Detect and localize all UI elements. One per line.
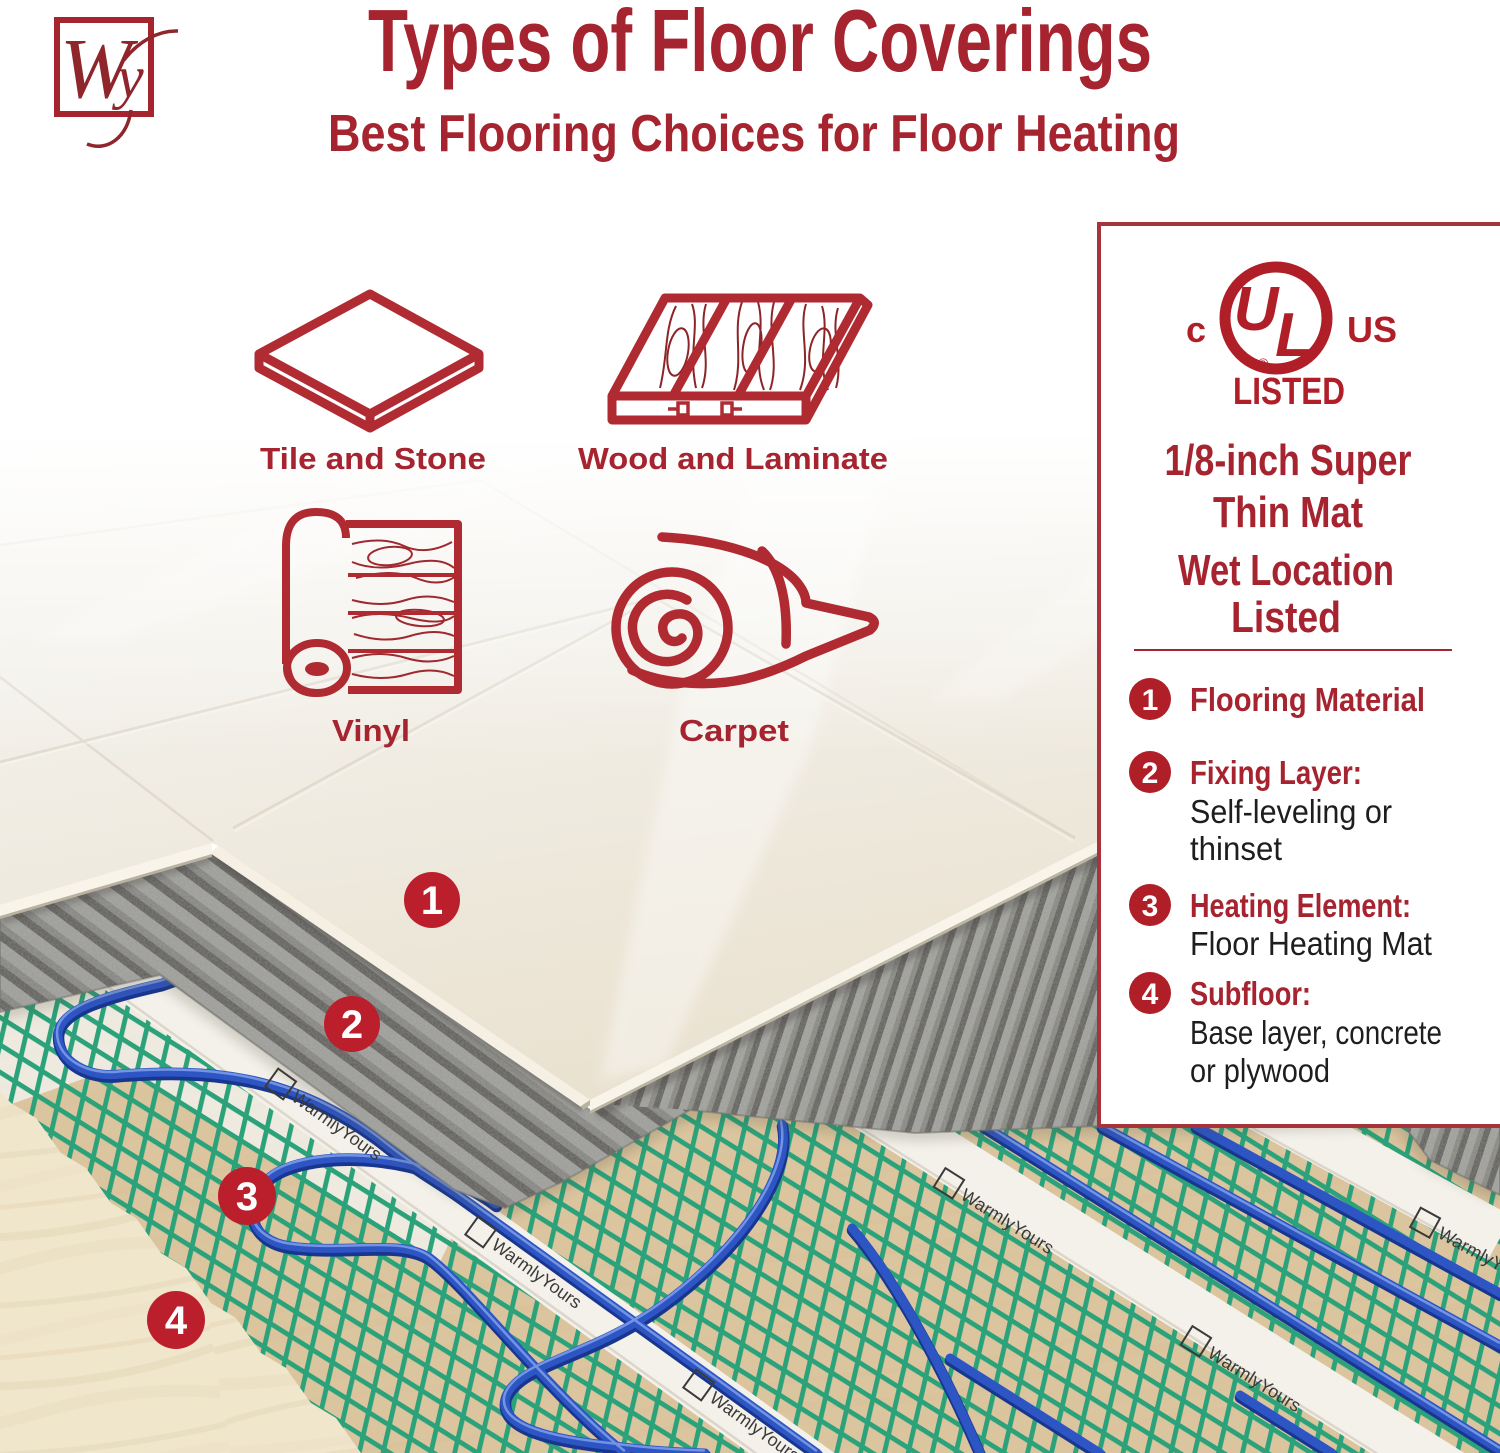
svg-text:1: 1 (421, 879, 443, 923)
svg-text:1/8-inch Super: 1/8-inch Super (1165, 436, 1412, 485)
svg-text:Wood and Laminate: Wood and Laminate (578, 441, 888, 476)
svg-text:Best Flooring Choices for Floo: Best Flooring Choices for Floor Heating (328, 105, 1180, 163)
svg-text:Self-leveling or: Self-leveling or (1190, 793, 1392, 830)
svg-text:4: 4 (165, 1299, 188, 1343)
svg-text:Floor Heating Mat: Floor Heating Mat (1190, 925, 1432, 962)
svg-text:thinset: thinset (1190, 830, 1282, 867)
svg-text:1: 1 (1142, 684, 1159, 717)
svg-text:3: 3 (1142, 890, 1159, 923)
svg-text:US: US (1347, 309, 1397, 350)
svg-text:Thin Mat: Thin Mat (1213, 488, 1363, 537)
svg-text:2: 2 (1142, 757, 1159, 790)
svg-text:Carpet: Carpet (679, 713, 789, 748)
svg-text:Types of Floor Coverings: Types of Floor Coverings (368, 0, 1152, 90)
svg-text:Tile and Stone: Tile and Stone (260, 441, 486, 476)
svg-text:or plywood: or plywood (1190, 1052, 1330, 1089)
svg-text:Wet Location: Wet Location (1178, 546, 1394, 595)
svg-text:LISTED: LISTED (1233, 371, 1345, 413)
svg-text:c: c (1186, 309, 1206, 350)
svg-text:®: ® (1258, 355, 1269, 371)
svg-text:3: 3 (236, 1175, 258, 1219)
svg-text:2: 2 (341, 1003, 363, 1047)
svg-text:Base layer, concrete: Base layer, concrete (1190, 1014, 1442, 1051)
svg-text:Vinyl: Vinyl (332, 713, 410, 748)
svg-text:L: L (1275, 301, 1313, 370)
svg-text:Listed: Listed (1231, 593, 1341, 642)
svg-text:U: U (1234, 275, 1281, 344)
svg-text:Fixing Layer:: Fixing Layer: (1190, 754, 1362, 791)
svg-text:4: 4 (1142, 978, 1159, 1011)
svg-text:Heating Element:: Heating Element: (1190, 887, 1411, 924)
svg-text:Flooring Material: Flooring Material (1190, 681, 1425, 718)
svg-text:Subfloor:: Subfloor: (1190, 975, 1311, 1012)
